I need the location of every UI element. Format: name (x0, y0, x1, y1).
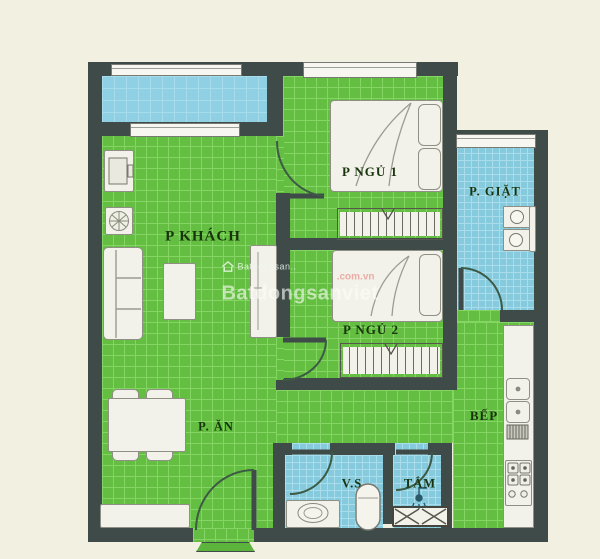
room-label-bedroom1: P NGỦ 1 (342, 164, 398, 180)
washing-machine-a (503, 206, 532, 228)
room-label-bath: TẮM (404, 477, 436, 492)
wall-bedrooms-right (443, 62, 457, 390)
tv-cabinet (104, 150, 134, 192)
pillow-bedroom1-b (418, 148, 441, 190)
laundry-shelf (529, 206, 536, 252)
bedroom1-door-gap (276, 136, 284, 193)
wardrobe-bedroom1 (337, 208, 443, 240)
room-label-toilet: V.S (342, 477, 363, 492)
entrance-threshold (196, 542, 255, 552)
wall-living-bedrooms (276, 193, 290, 337)
dining-table (108, 398, 186, 452)
toilet-door-gap (292, 443, 330, 455)
wall-bottom (88, 528, 548, 542)
bedroom2-door-gap (276, 337, 284, 380)
laundry-window (456, 134, 536, 148)
room-label-kitchen: BẾP (470, 408, 498, 424)
laundry-door-gap (457, 310, 500, 322)
wall-balcony-right (267, 62, 283, 136)
plant-stand (105, 207, 133, 235)
balcony-floor (102, 76, 267, 122)
wardrobe-bedroom2 (340, 343, 443, 378)
stove (505, 460, 532, 506)
laundry-floor (457, 146, 534, 310)
hall-passage-floor (276, 390, 457, 443)
washing-machine-b (503, 229, 530, 251)
room-label-laundry: P. GIẶT (469, 185, 521, 200)
coffee-table (163, 263, 196, 320)
entrance-door-gap (193, 528, 254, 542)
wall-laundry-bottom (500, 310, 548, 322)
room-label-living: P KHÁCH (165, 229, 241, 246)
room-label-dining: P. ĂN (198, 420, 234, 435)
bath-door-gap (395, 443, 428, 455)
room-label-bedroom2: P NGỦ 2 (343, 322, 399, 338)
bedroom1-window (303, 62, 417, 78)
wall-bath-left (273, 443, 285, 528)
shower-tray (392, 506, 449, 527)
balcony-railing-window (111, 64, 242, 76)
media-cabinet (250, 245, 277, 338)
pillow-bedroom2 (419, 254, 441, 316)
wall-left (88, 62, 102, 542)
wall-bedroom2-bottom (276, 378, 457, 390)
balcony-sliding-door (130, 123, 240, 137)
wall-right (534, 130, 548, 542)
sink-basin-b (506, 401, 530, 423)
sink-basin-a (506, 378, 530, 400)
sofa (103, 247, 143, 340)
pillow-bedroom1-a (418, 104, 441, 146)
shoe-cabinet (100, 504, 190, 528)
washbasin-counter (286, 500, 340, 528)
floor-plan: P KHÁCH P NGỦ 1 P NGỦ 2 P. GIẶT BẾP P. Ă… (0, 0, 600, 559)
